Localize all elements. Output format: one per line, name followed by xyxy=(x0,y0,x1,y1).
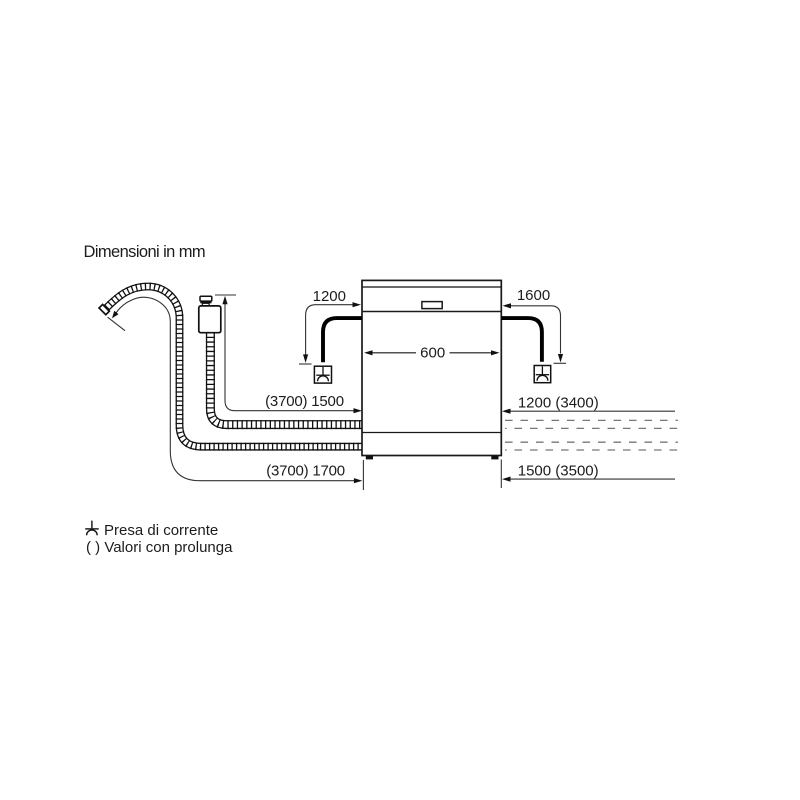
svg-text:1500 (3500): 1500 (3500) xyxy=(518,462,599,479)
svg-text:1200: 1200 xyxy=(313,288,346,305)
svg-text:1200 (3400): 1200 (3400) xyxy=(518,394,599,411)
svg-text:( ) Valori con prolunga: ( ) Valori con prolunga xyxy=(86,539,233,556)
svg-text:(3700) 1500: (3700) 1500 xyxy=(265,393,344,410)
svg-text:600: 600 xyxy=(420,345,445,362)
svg-text:1600: 1600 xyxy=(517,287,550,304)
svg-text:Presa di corrente: Presa di corrente xyxy=(104,522,218,539)
svg-text:(3700) 1700: (3700) 1700 xyxy=(266,463,345,480)
svg-text:Dimensioni in mm: Dimensioni in mm xyxy=(84,243,206,261)
